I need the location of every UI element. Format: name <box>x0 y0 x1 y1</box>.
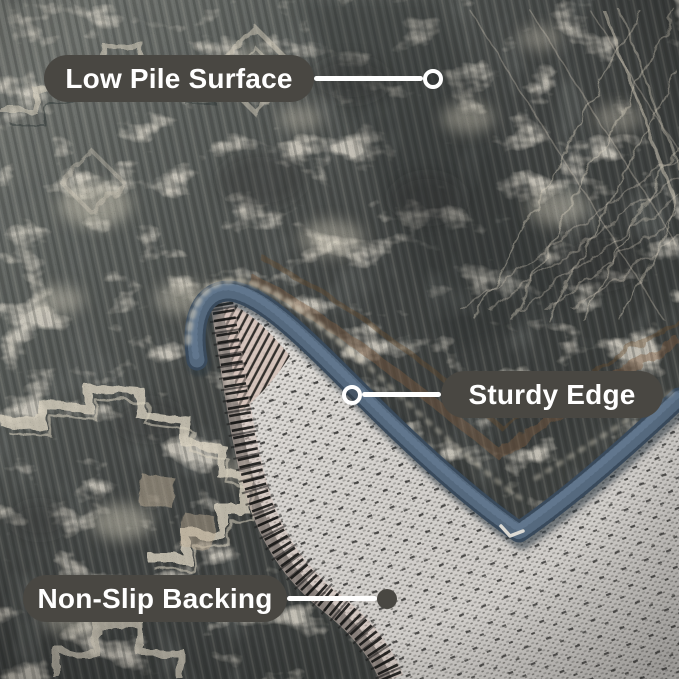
callout-target-dot-icon <box>377 589 397 609</box>
callout-low-pile-surface: Low Pile Surface <box>44 55 443 102</box>
callout-target-ring-icon <box>423 69 443 89</box>
callout-pill: Non-Slip Backing <box>23 575 287 622</box>
callout-connector-line <box>287 596 377 601</box>
callout-target-ring-icon <box>342 385 362 405</box>
product-annotation-image: Low Pile Surface Sturdy Edge Non-Slip Ba… <box>0 0 679 679</box>
callout-sturdy-edge: Sturdy Edge <box>342 371 663 418</box>
callout-connector-line <box>314 76 423 81</box>
callout-pill: Low Pile Surface <box>44 55 314 102</box>
callout-non-slip-backing: Non-Slip Backing <box>23 575 397 622</box>
callout-label: Non-Slip Backing <box>38 583 273 615</box>
callout-connector-line <box>362 392 441 397</box>
callout-label: Low Pile Surface <box>65 63 292 95</box>
callout-pill: Sturdy Edge <box>441 371 663 418</box>
callout-label: Sturdy Edge <box>468 379 635 411</box>
